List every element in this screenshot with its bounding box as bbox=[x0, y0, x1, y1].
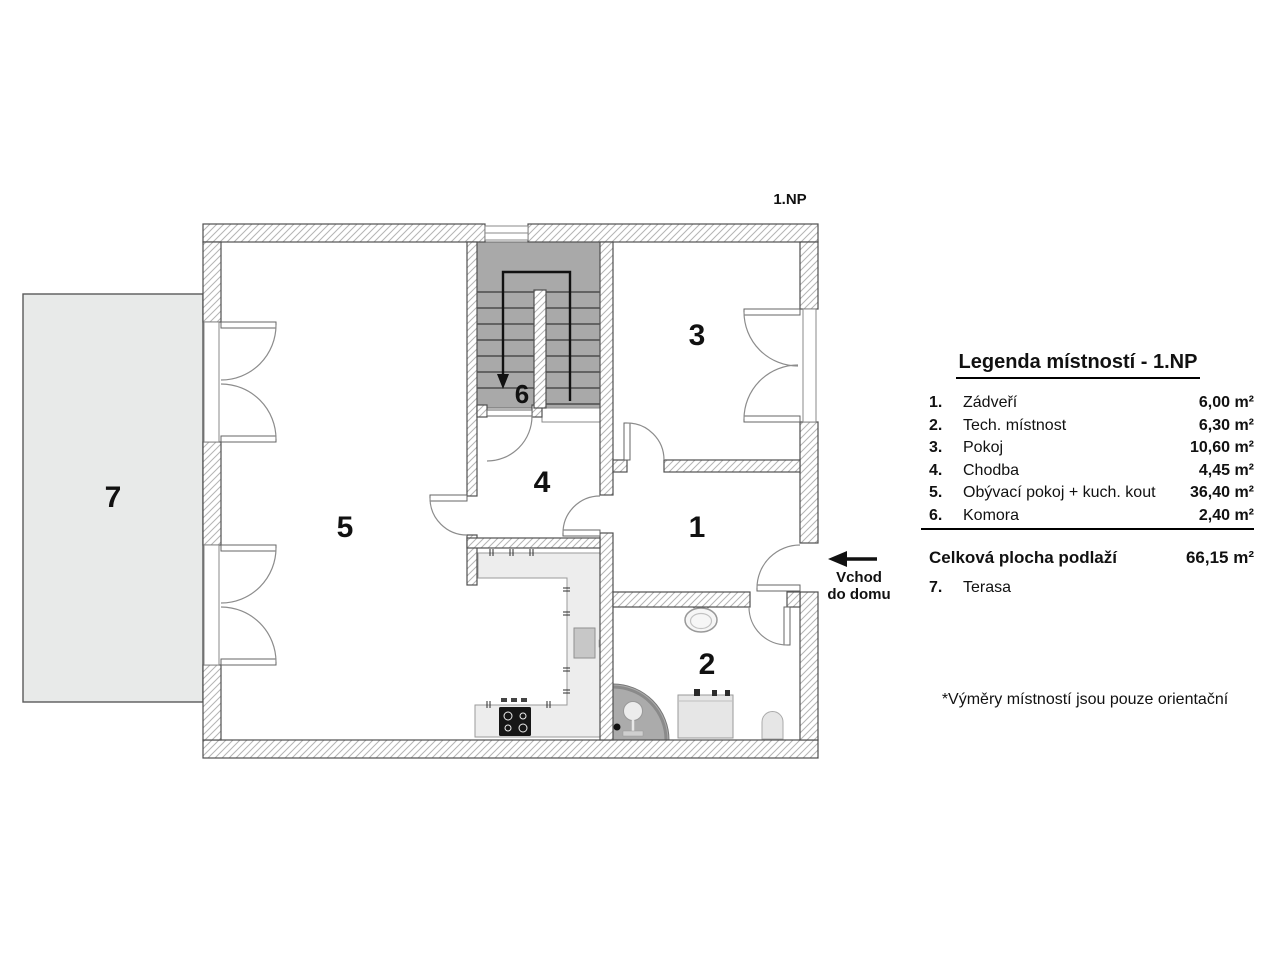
legend-title: Legenda místností - 1.NP bbox=[911, 351, 1245, 379]
legend-row: 4. Chodba 4,45 m² bbox=[922, 460, 1254, 483]
floor-plan-page: 1 2 3 4 5 6 7 1.NP Vchod do domu Legenda… bbox=[0, 0, 1280, 960]
room-name: Chodba bbox=[963, 460, 1199, 483]
room-area: 2,40 m² bbox=[1199, 505, 1254, 528]
kitchen-counter bbox=[475, 549, 605, 737]
stove-icon bbox=[499, 698, 531, 736]
terrace-door-upper bbox=[204, 322, 276, 442]
legend-rows: 1. Zádveří 6,00 m² 2. Tech. místnost 6,3… bbox=[922, 392, 1254, 527]
room-number: 2. bbox=[922, 415, 963, 438]
entry-door bbox=[757, 545, 800, 591]
legend-title-text: Legenda místností - 1.NP bbox=[956, 351, 1201, 379]
room3-door bbox=[624, 423, 664, 460]
room-name: Komora bbox=[963, 505, 1199, 528]
room-number: 1. bbox=[922, 392, 963, 415]
floor-name-label: 1.NP bbox=[773, 191, 806, 208]
legend-terrace-row: 7. Terasa bbox=[922, 577, 1254, 600]
entrance-label-line2: do domu bbox=[827, 586, 890, 603]
room-area: 6,00 m² bbox=[1199, 392, 1254, 415]
boiler-icon bbox=[762, 712, 783, 739]
legend-divider bbox=[921, 528, 1254, 530]
room-area: 4,45 m² bbox=[1199, 460, 1254, 483]
room-label-6: 6 bbox=[515, 379, 529, 409]
entrance-arrow-icon bbox=[828, 551, 847, 567]
legend-row: 5. Obývací pokoj + kuch. kout 36,40 m² bbox=[922, 482, 1254, 505]
room-name: Obývací pokoj + kuch. kout bbox=[963, 482, 1190, 505]
legend-row: 2. Tech. místnost 6,30 m² bbox=[922, 415, 1254, 438]
total-area-value: 66,15 m² bbox=[1186, 548, 1254, 568]
room-label-2: 2 bbox=[699, 648, 716, 681]
legend-row: 1. Zádveří 6,00 m² bbox=[922, 392, 1254, 415]
terrace-door-lower bbox=[204, 545, 276, 665]
room-area: 6,30 m² bbox=[1199, 415, 1254, 438]
room-label-3: 3 bbox=[689, 319, 706, 352]
room-label-4: 4 bbox=[534, 466, 551, 499]
room-name: Terasa bbox=[963, 579, 1254, 597]
room-name: Tech. místnost bbox=[963, 415, 1199, 438]
room-area: 36,40 m² bbox=[1190, 482, 1254, 505]
room4-room1-door bbox=[563, 496, 600, 536]
stair-threshold bbox=[542, 408, 600, 422]
room3-french-door bbox=[744, 309, 816, 422]
room-number: 4. bbox=[922, 460, 963, 483]
washing-machine-icon bbox=[678, 689, 733, 738]
room-number: 6. bbox=[922, 505, 963, 528]
legend-row: 3. Pokoj 10,60 m² bbox=[922, 437, 1254, 460]
legend-row: 6. Komora 2,40 m² bbox=[922, 505, 1254, 528]
room-number: 5. bbox=[922, 482, 963, 505]
footnote: *Výměry místností jsou pouze orientační bbox=[900, 691, 1270, 709]
entrance-annotation: Vchod do domu bbox=[827, 551, 890, 603]
legend-total-row: Celková plocha podlaží 66,15 m² bbox=[922, 546, 1254, 570]
room-label-5: 5 bbox=[337, 511, 354, 544]
room-area: 10,60 m² bbox=[1190, 437, 1254, 460]
total-area-label: Celková plocha podlaží bbox=[922, 548, 1186, 568]
stair-room4-door bbox=[487, 410, 532, 461]
room-name: Zádveří bbox=[963, 392, 1199, 415]
room-label-7: 7 bbox=[105, 481, 122, 514]
room-name: Pokoj bbox=[963, 437, 1190, 460]
room-number: 3. bbox=[922, 437, 963, 460]
window bbox=[485, 226, 528, 240]
room-number: 7. bbox=[922, 579, 963, 597]
room-label-1: 1 bbox=[689, 511, 706, 544]
room2-door bbox=[749, 607, 790, 645]
shower-icon bbox=[613, 684, 669, 740]
entrance-label-line1: Vchod bbox=[836, 569, 882, 586]
room4-room5-door bbox=[430, 495, 467, 535]
